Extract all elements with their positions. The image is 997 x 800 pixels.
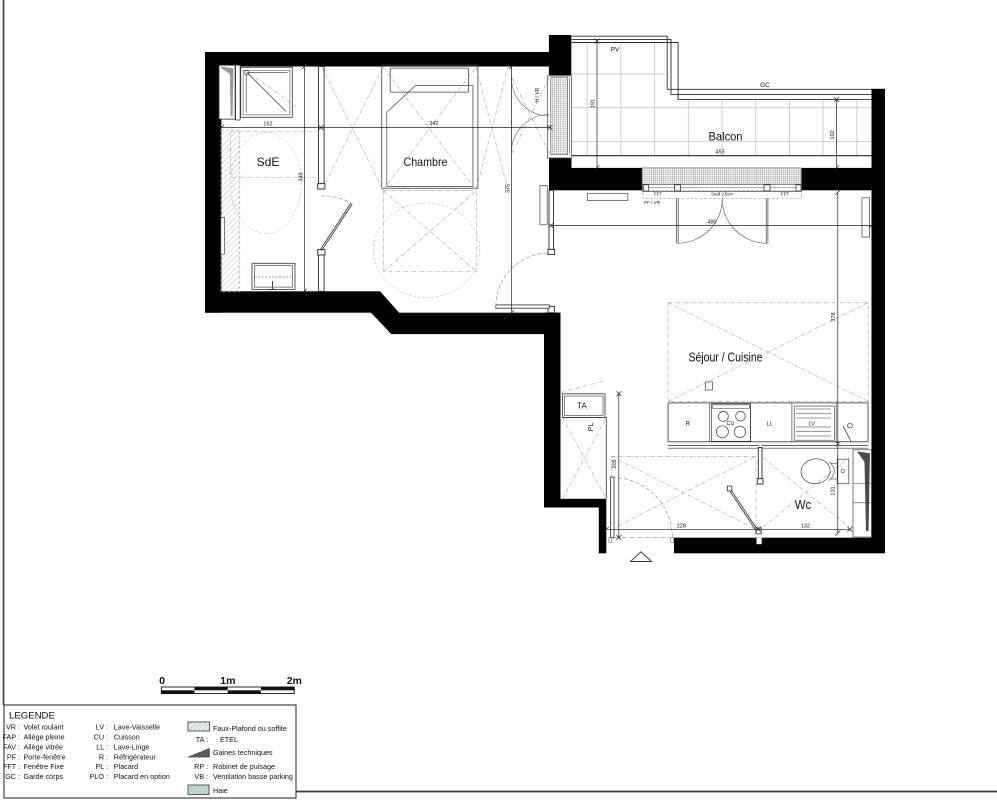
svg-text:205: 205 bbox=[612, 459, 618, 468]
svg-text:PL: PL bbox=[588, 423, 595, 432]
svg-text:132: 132 bbox=[801, 523, 810, 529]
svg-text:Seuil 2.5cm: Seuil 2.5cm bbox=[711, 192, 733, 197]
svg-text:131: 131 bbox=[831, 486, 837, 495]
svg-text:480: 480 bbox=[707, 219, 716, 225]
svg-text:FAP :: FAP : bbox=[3, 732, 20, 741]
svg-text:GC: GC bbox=[760, 82, 770, 89]
svg-text:Balcon: Balcon bbox=[709, 130, 743, 144]
svg-text:CU: CU bbox=[727, 421, 735, 427]
svg-text:340: 340 bbox=[298, 172, 304, 181]
svg-text:PL :: PL : bbox=[95, 762, 108, 771]
svg-text:Lave-Linge: Lave-Linge bbox=[114, 742, 150, 751]
svg-text:TA :: TA : bbox=[196, 735, 208, 744]
svg-text:Wc: Wc bbox=[795, 497, 812, 512]
svg-text:PF / VR: PF / VR bbox=[644, 200, 661, 205]
svg-text:LL :: LL : bbox=[96, 742, 108, 751]
svg-text:LEGENDE: LEGENDE bbox=[9, 711, 55, 722]
svg-text:342: 342 bbox=[429, 121, 438, 127]
svg-text:Porte-fenêtre: Porte-fenêtre bbox=[24, 752, 66, 761]
svg-text:2m: 2m bbox=[287, 675, 302, 687]
svg-text:Robinet de puisage: Robinet de puisage bbox=[213, 762, 275, 771]
svg-text:FFT :: FFT : bbox=[3, 762, 20, 771]
svg-text:1m: 1m bbox=[220, 675, 235, 687]
svg-text:Allège vitrée: Allège vitrée bbox=[24, 742, 64, 751]
svg-text:453: 453 bbox=[715, 149, 724, 155]
svg-text:Placard: Placard bbox=[114, 762, 138, 771]
svg-text:Volet roulant: Volet roulant bbox=[24, 723, 64, 732]
svg-text:378: 378 bbox=[831, 312, 837, 321]
svg-text:PF :: PF : bbox=[7, 752, 20, 761]
svg-text:PV: PV bbox=[611, 47, 620, 54]
svg-text:R: R bbox=[686, 421, 691, 427]
svg-text:Fenêtre Fixe: Fenêtre Fixe bbox=[24, 762, 64, 771]
svg-text:FAV :: FAV : bbox=[3, 742, 20, 751]
svg-text:LL: LL bbox=[767, 422, 773, 428]
svg-text:228: 228 bbox=[677, 523, 686, 529]
svg-text:Faux-Plafond ou soffite: Faux-Plafond ou soffite bbox=[213, 724, 287, 733]
svg-text:Placard en option: Placard en option bbox=[114, 772, 170, 781]
svg-text:Haie: Haie bbox=[213, 786, 228, 795]
svg-text:Séjour / Cuisine: Séjour / Cuisine bbox=[689, 351, 763, 365]
svg-text:ETEL: ETEL bbox=[220, 735, 238, 744]
svg-text:Lave-Vaisselle: Lave-Vaisselle bbox=[114, 723, 160, 732]
svg-text:VR :: VR : bbox=[6, 723, 20, 732]
svg-text:191: 191 bbox=[590, 99, 596, 108]
svg-text:0: 0 bbox=[159, 675, 165, 687]
svg-text:162: 162 bbox=[263, 122, 272, 128]
svg-text:Garde corps: Garde corps bbox=[24, 772, 64, 781]
svg-text:PLO :: PLO : bbox=[90, 772, 108, 781]
svg-text:Chambre: Chambre bbox=[404, 155, 448, 169]
svg-text:RP :: RP : bbox=[194, 762, 208, 771]
svg-text:SdE: SdE bbox=[257, 155, 280, 169]
svg-text:375: 375 bbox=[505, 184, 511, 193]
svg-text:GC :: GC : bbox=[5, 772, 20, 781]
svg-text:Ventilation basse parking: Ventilation basse parking bbox=[213, 772, 293, 781]
svg-text:Cuisson: Cuisson bbox=[114, 732, 140, 741]
svg-text:TA: TA bbox=[577, 402, 587, 411]
svg-text:LV :: LV : bbox=[96, 723, 108, 732]
svg-text:102: 102 bbox=[830, 130, 836, 139]
svg-text:Réfrigérateur: Réfrigérateur bbox=[114, 752, 157, 761]
svg-text:H / VR: H / VR bbox=[535, 87, 541, 102]
svg-text:CU :: CU : bbox=[94, 732, 108, 741]
svg-text:LV: LV bbox=[809, 422, 816, 428]
svg-text:VB :: VB : bbox=[194, 772, 208, 781]
svg-text:Allège pleine: Allège pleine bbox=[24, 732, 65, 741]
svg-text:FFT: FFT bbox=[654, 192, 662, 197]
svg-text:FFT: FFT bbox=[781, 192, 789, 197]
svg-text:Gaines techniques: Gaines techniques bbox=[213, 748, 273, 757]
svg-text:R :: R : bbox=[99, 752, 108, 761]
